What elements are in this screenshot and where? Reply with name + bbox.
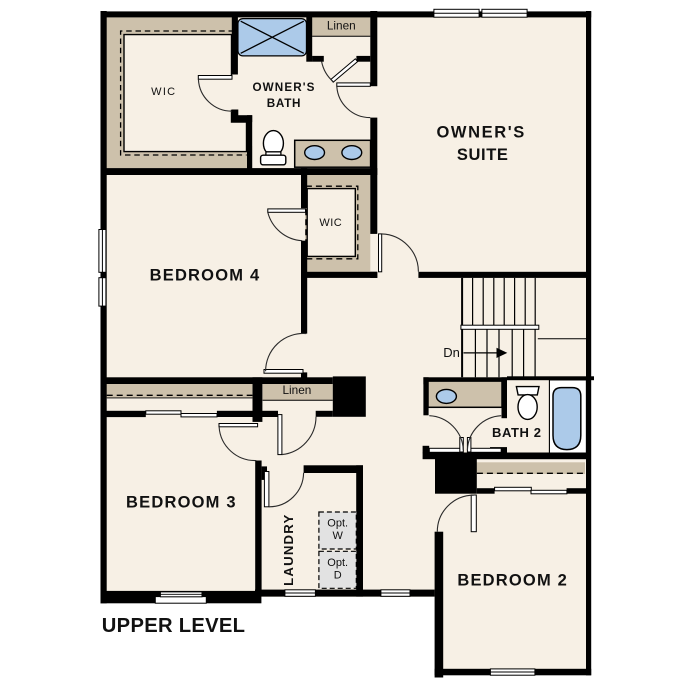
svg-text:W: W [333, 530, 344, 542]
svg-text:BATH 2: BATH 2 [492, 425, 542, 440]
svg-text:Opt.: Opt. [327, 557, 348, 569]
svg-text:OWNER'S: OWNER'S [437, 123, 526, 141]
svg-text:UPPER LEVEL: UPPER LEVEL [102, 615, 246, 637]
svg-text:BEDROOM 4: BEDROOM 4 [150, 266, 261, 284]
svg-text:WIC: WIC [151, 86, 176, 98]
svg-text:BEDROOM 3: BEDROOM 3 [126, 493, 237, 511]
svg-text:Dn: Dn [443, 345, 460, 360]
svg-text:BEDROOM 2: BEDROOM 2 [457, 572, 568, 590]
svg-text:WIC: WIC [319, 217, 342, 229]
svg-text:Linen: Linen [327, 19, 356, 33]
svg-text:SUITE: SUITE [457, 146, 509, 164]
svg-text:LAUNDRY: LAUNDRY [281, 514, 296, 586]
svg-text:Linen: Linen [282, 383, 311, 397]
svg-text:Opt.: Opt. [327, 518, 348, 530]
svg-text:D: D [334, 569, 342, 581]
svg-text:BATH: BATH [267, 97, 301, 110]
svg-text:OWNER'S: OWNER'S [252, 81, 315, 94]
